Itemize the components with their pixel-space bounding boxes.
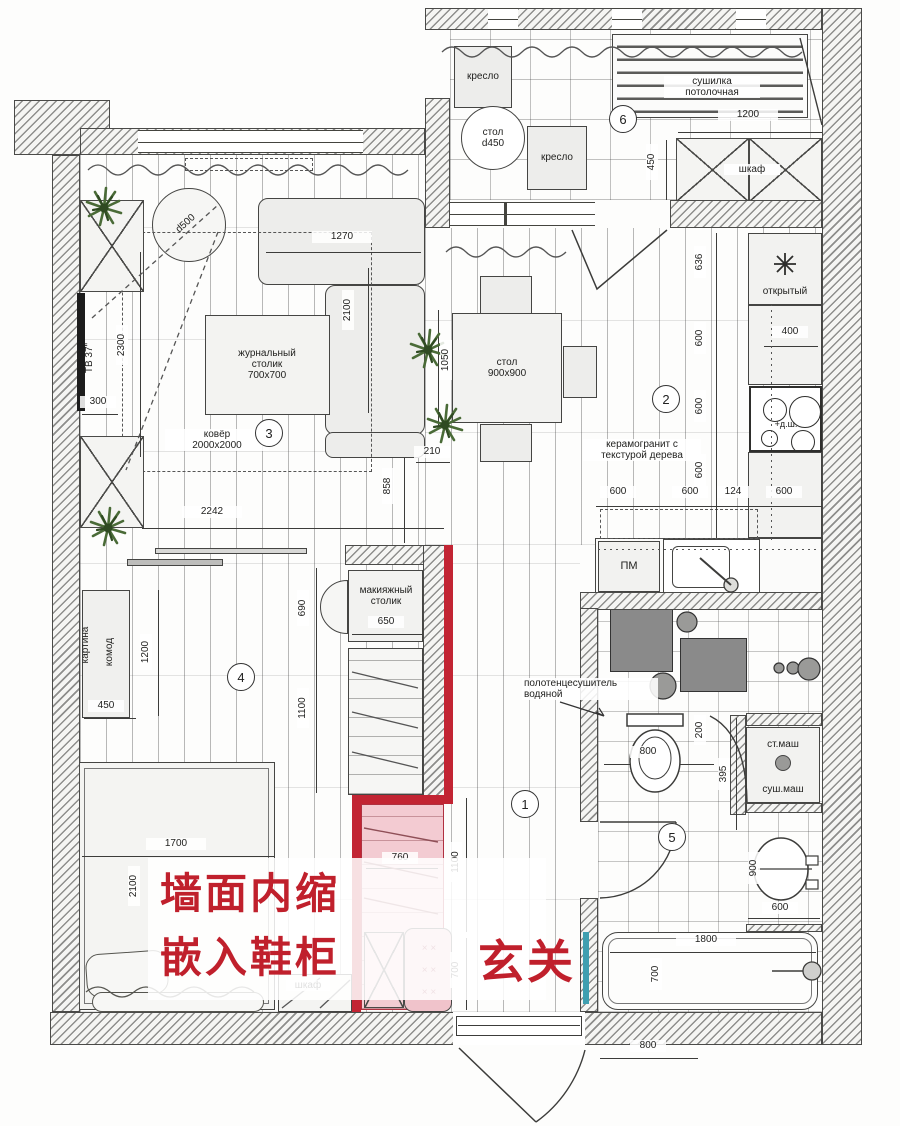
dim-b600-3: 600 xyxy=(766,486,802,498)
kitchen-chair-top xyxy=(480,276,532,314)
balcony-table-label: стол d450 xyxy=(463,127,523,149)
dim-line xyxy=(404,458,405,543)
dim-line xyxy=(764,346,818,347)
dim-2242: 2242 xyxy=(182,506,242,518)
living-window xyxy=(138,130,363,153)
dim-line xyxy=(596,506,822,507)
entrance-door-arc xyxy=(536,1050,585,1122)
dim-line xyxy=(736,718,737,830)
zone-living: 3 xyxy=(255,419,283,447)
burner-4 xyxy=(791,430,815,454)
makeup-table-label: макияжный столик xyxy=(348,585,424,607)
oven-label: +д.ш. xyxy=(764,419,808,430)
dim-300: 300 xyxy=(80,396,116,408)
utility-unit-1 xyxy=(610,609,673,672)
counter-dotted-line xyxy=(598,549,820,550)
dim-balcony-1200: 1200 xyxy=(718,109,778,121)
armchair-2-label: кресло xyxy=(527,152,587,163)
wall-bath-left-upper xyxy=(580,608,598,822)
kitchen-floor-note: керамогранит с текстурой дерева xyxy=(583,439,701,461)
dim-sofa-2100: 2100 xyxy=(342,290,354,330)
dim-sink-600: 600 xyxy=(762,902,798,914)
open-shelf-label: открытый xyxy=(750,286,820,297)
cabinet-400 xyxy=(748,305,822,385)
dim-bottom-800: 800 xyxy=(630,1040,666,1052)
wall-washer-top xyxy=(746,713,822,726)
left-cabinet-bottom xyxy=(80,436,144,528)
dim-1050: 1050 xyxy=(440,340,452,380)
top-window-1 xyxy=(488,8,518,30)
dim-line xyxy=(158,590,159,716)
picture-label: картина xyxy=(80,615,92,675)
left-cabinet-top xyxy=(80,200,144,292)
ceiling-dryer-label: сушилка потолочная xyxy=(664,76,760,98)
dim-bed-1700: 1700 xyxy=(146,838,206,850)
red-wall-horizontal xyxy=(352,795,453,804)
dim-line xyxy=(748,918,820,919)
dishwasher-label: ПМ xyxy=(609,561,649,572)
burner-3 xyxy=(761,430,778,447)
dim-b600-1: 600 xyxy=(600,486,636,498)
wall-balcony-divider-right xyxy=(670,200,822,228)
wall-living-balcony-column xyxy=(425,98,450,228)
dim-line xyxy=(438,310,439,425)
rug-label: ковёр 2000х2000 xyxy=(165,429,269,451)
kitchen-sink-basin xyxy=(672,546,730,588)
niche-wardrobe xyxy=(348,648,423,795)
note-line-1: 墙面内缩 xyxy=(160,864,340,924)
tv-label: ТВ 37" xyxy=(84,327,96,389)
dim-600-v3: 600 xyxy=(694,454,706,486)
floor-plan: × × × × × × кресло стол d450 кресло суши… xyxy=(0,0,900,1126)
zone-balcony: 6 xyxy=(609,105,637,133)
dim-line xyxy=(84,718,136,719)
dim-line xyxy=(140,252,141,457)
dim-line xyxy=(142,528,444,529)
radiator xyxy=(185,158,313,171)
dim-line xyxy=(82,414,118,415)
dim-line xyxy=(416,462,450,463)
kitchen-table-label: стол 900х900 xyxy=(477,357,537,379)
dishwasher-dashed-outline xyxy=(600,509,758,539)
entrance-door-leaf xyxy=(459,1048,536,1122)
dim-dresser-450: 450 xyxy=(88,700,124,712)
top-window-3 xyxy=(736,8,766,30)
dim-690: 690 xyxy=(297,590,309,626)
dim-line xyxy=(316,568,317,793)
zone-kitchen: 2 xyxy=(652,385,680,413)
dim-line xyxy=(352,634,422,635)
dim-858: 858 xyxy=(382,468,394,504)
wall-bath-top xyxy=(580,592,822,610)
dim-2300: 2300 xyxy=(116,325,128,365)
zone-bath: 5 xyxy=(658,823,686,851)
dim-line xyxy=(368,268,369,413)
balcony-wardrobe-label: шкаф xyxy=(724,164,780,175)
dim-line xyxy=(666,140,667,200)
kitchen-chair-right xyxy=(563,346,597,398)
utility-unit-2 xyxy=(680,638,747,692)
entrance-door-line xyxy=(458,1025,580,1026)
bathtub-inner xyxy=(608,938,812,1004)
dim-line xyxy=(678,132,822,133)
wall-right xyxy=(822,8,862,1045)
tv-shelf-2 xyxy=(127,559,223,566)
dim-tub-1800: 1800 xyxy=(676,934,736,946)
entrance-door xyxy=(456,1016,582,1036)
dim-600-v2: 600 xyxy=(694,390,706,422)
towel-dryer-label: полотенцесушитель водяной xyxy=(522,678,658,700)
dim-line xyxy=(604,764,714,765)
kitchen-chair-bottom xyxy=(480,424,532,462)
dim-395: 395 xyxy=(718,758,730,790)
window-mullion xyxy=(504,202,507,226)
dim-line xyxy=(266,252,421,253)
dim-400: 400 xyxy=(772,326,808,338)
wall-bottom xyxy=(50,1012,822,1045)
dim-bed-2100: 2100 xyxy=(128,866,140,906)
dim-650: 650 xyxy=(368,616,404,628)
dim-b600-2: 600 xyxy=(672,486,708,498)
dim-dresser-1200: 1200 xyxy=(140,634,152,670)
note-line-2: 嵌入鞋柜 xyxy=(160,928,340,988)
dim-sofa-1270: 1270 xyxy=(312,231,372,243)
wall-niche-right xyxy=(423,545,445,800)
dim-600-v1: 600 xyxy=(694,322,706,354)
dim-b124: 124 xyxy=(717,486,749,498)
tv-shelf-1 xyxy=(155,548,307,554)
washer-door-circle xyxy=(775,755,791,771)
coffee-table-label: журнальный столик 700х700 xyxy=(207,348,327,381)
dresser-label: комод xyxy=(104,622,116,682)
top-window-2 xyxy=(612,8,642,30)
dim-tub-700: 700 xyxy=(650,958,662,990)
wall-washer-left xyxy=(730,715,746,815)
zone-bedroom: 4 xyxy=(227,663,255,691)
dim-636: 636 xyxy=(694,246,706,278)
dim-line xyxy=(610,952,816,953)
dim-sink-900: 900 xyxy=(748,852,760,884)
zone-hall: 1 xyxy=(511,790,539,818)
armchair-1-label: кресло xyxy=(453,71,513,82)
door-frame-accent xyxy=(583,932,589,1004)
red-wall-vertical-upper xyxy=(444,545,453,800)
kitchen-balcony-window xyxy=(450,202,595,226)
dim-balcony-450: 450 xyxy=(646,144,658,180)
wall-washer-bottom xyxy=(746,803,822,813)
dim-line xyxy=(600,1058,698,1059)
entry-label: 玄关 xyxy=(478,934,576,990)
dim-210: 210 xyxy=(414,446,450,458)
washer-label: ст.маш xyxy=(753,739,813,750)
wall-left xyxy=(52,155,80,1012)
dim-line xyxy=(82,856,274,857)
wall-sink-bottom xyxy=(746,924,822,932)
dim-toilet-800: 800 xyxy=(630,746,666,758)
dryer-label: суш.маш xyxy=(753,784,813,795)
dim-200: 200 xyxy=(694,715,706,745)
dim-1100: 1100 xyxy=(297,688,309,728)
